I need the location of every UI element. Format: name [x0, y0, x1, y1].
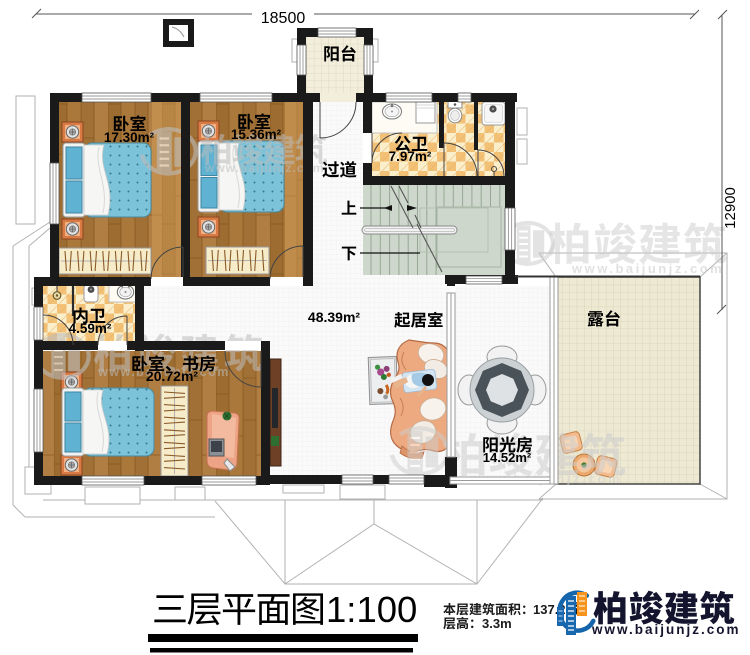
svg-text:www.baijunjz.com: www.baijunjz.com	[571, 261, 724, 276]
svg-text:www.baijunjz.com: www.baijunjz.com	[591, 622, 741, 637]
svg-text:3.3m: 3.3m	[482, 616, 512, 631]
svg-text:1:100: 1:100	[326, 589, 417, 630]
svg-text:4.59m²: 4.59m²	[69, 321, 112, 336]
svg-text:18500: 18500	[261, 10, 306, 27]
svg-text:12900: 12900	[722, 187, 739, 229]
svg-text:14.52m²: 14.52m²	[483, 450, 532, 465]
svg-text:48.39m²: 48.39m²	[308, 309, 360, 325]
svg-text:17.30m²: 17.30m²	[104, 130, 155, 145]
svg-text:7.97m²: 7.97m²	[389, 149, 432, 164]
svg-text:15.36m²: 15.36m²	[231, 127, 282, 142]
svg-text:20.72m²: 20.72m²	[146, 368, 198, 384]
